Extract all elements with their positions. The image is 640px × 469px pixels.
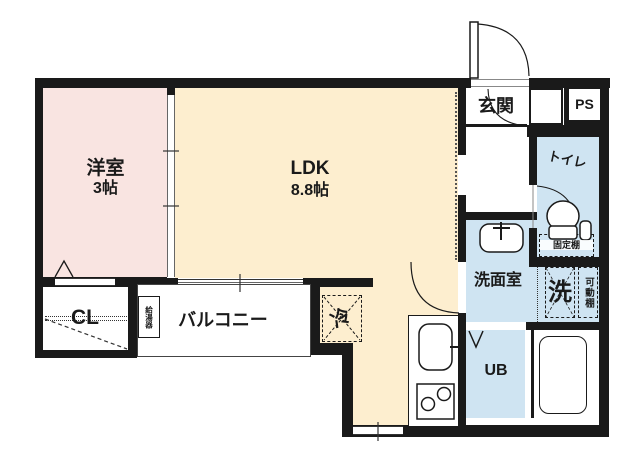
kitchen-counter (408, 315, 459, 427)
unit-bath-label: UB (466, 362, 526, 380)
wall-closet-right (128, 287, 137, 358)
ldk-size: 8.8帖 (265, 182, 355, 200)
wall-closet-bottom (35, 350, 137, 358)
wall-left (35, 78, 43, 358)
movable-shelf-label: 可動棚 (581, 277, 595, 309)
wall-hall-bottom (458, 212, 537, 220)
wall-bath-divider (531, 330, 534, 418)
ps-label: PS (575, 96, 594, 112)
closet-label: CL (50, 306, 120, 330)
washroom-label: 洗面室 (462, 272, 534, 290)
kitchen-window (353, 426, 403, 435)
western-room-size: 3帖 (48, 180, 163, 198)
washer-area-dotted-line (537, 267, 538, 322)
shoe-cabinet (529, 88, 563, 125)
bathtub (539, 336, 587, 414)
genkan-step-line (466, 124, 527, 127)
wall-nook-bottom (310, 343, 343, 355)
wall-kitchen-west (342, 343, 353, 437)
sliding-door-divider (167, 95, 175, 277)
fixed-shelf-label: 固定棚 (540, 240, 593, 250)
wall-genkan-bottom (527, 125, 609, 137)
kitchen-ceiling-dotted-line (455, 92, 457, 260)
washer-space: 洗 (545, 267, 575, 318)
water-heater-label: 給湯器 (144, 306, 155, 329)
washer-label: 洗 (548, 279, 572, 307)
wall-toilet-bottom (529, 257, 609, 267)
refrigerator-label: 冷 (328, 304, 355, 332)
ldk-label: LDK (265, 158, 355, 180)
ps-box: PS (564, 84, 605, 125)
entrance-label: 玄関 (468, 96, 524, 117)
wall-band-right (303, 278, 373, 287)
western-window (55, 278, 115, 286)
wall-east-b (458, 195, 466, 262)
balcony-label: バルコニー (160, 310, 286, 331)
movable-shelf: 可動棚 (578, 267, 598, 318)
room-ldk-passage (373, 278, 458, 287)
wall-top-left (35, 78, 471, 88)
ub-door-opening (466, 322, 526, 330)
entrance-threshold (471, 79, 529, 87)
refrigerator-space: 冷 (322, 295, 362, 342)
water-heater-box: 給湯器 (138, 296, 160, 338)
wall-east-a (458, 88, 466, 155)
western-room-label: 洋室 (48, 158, 163, 180)
floor-plan: 給湯器 PS 冷 洗 可動棚 (0, 0, 640, 469)
